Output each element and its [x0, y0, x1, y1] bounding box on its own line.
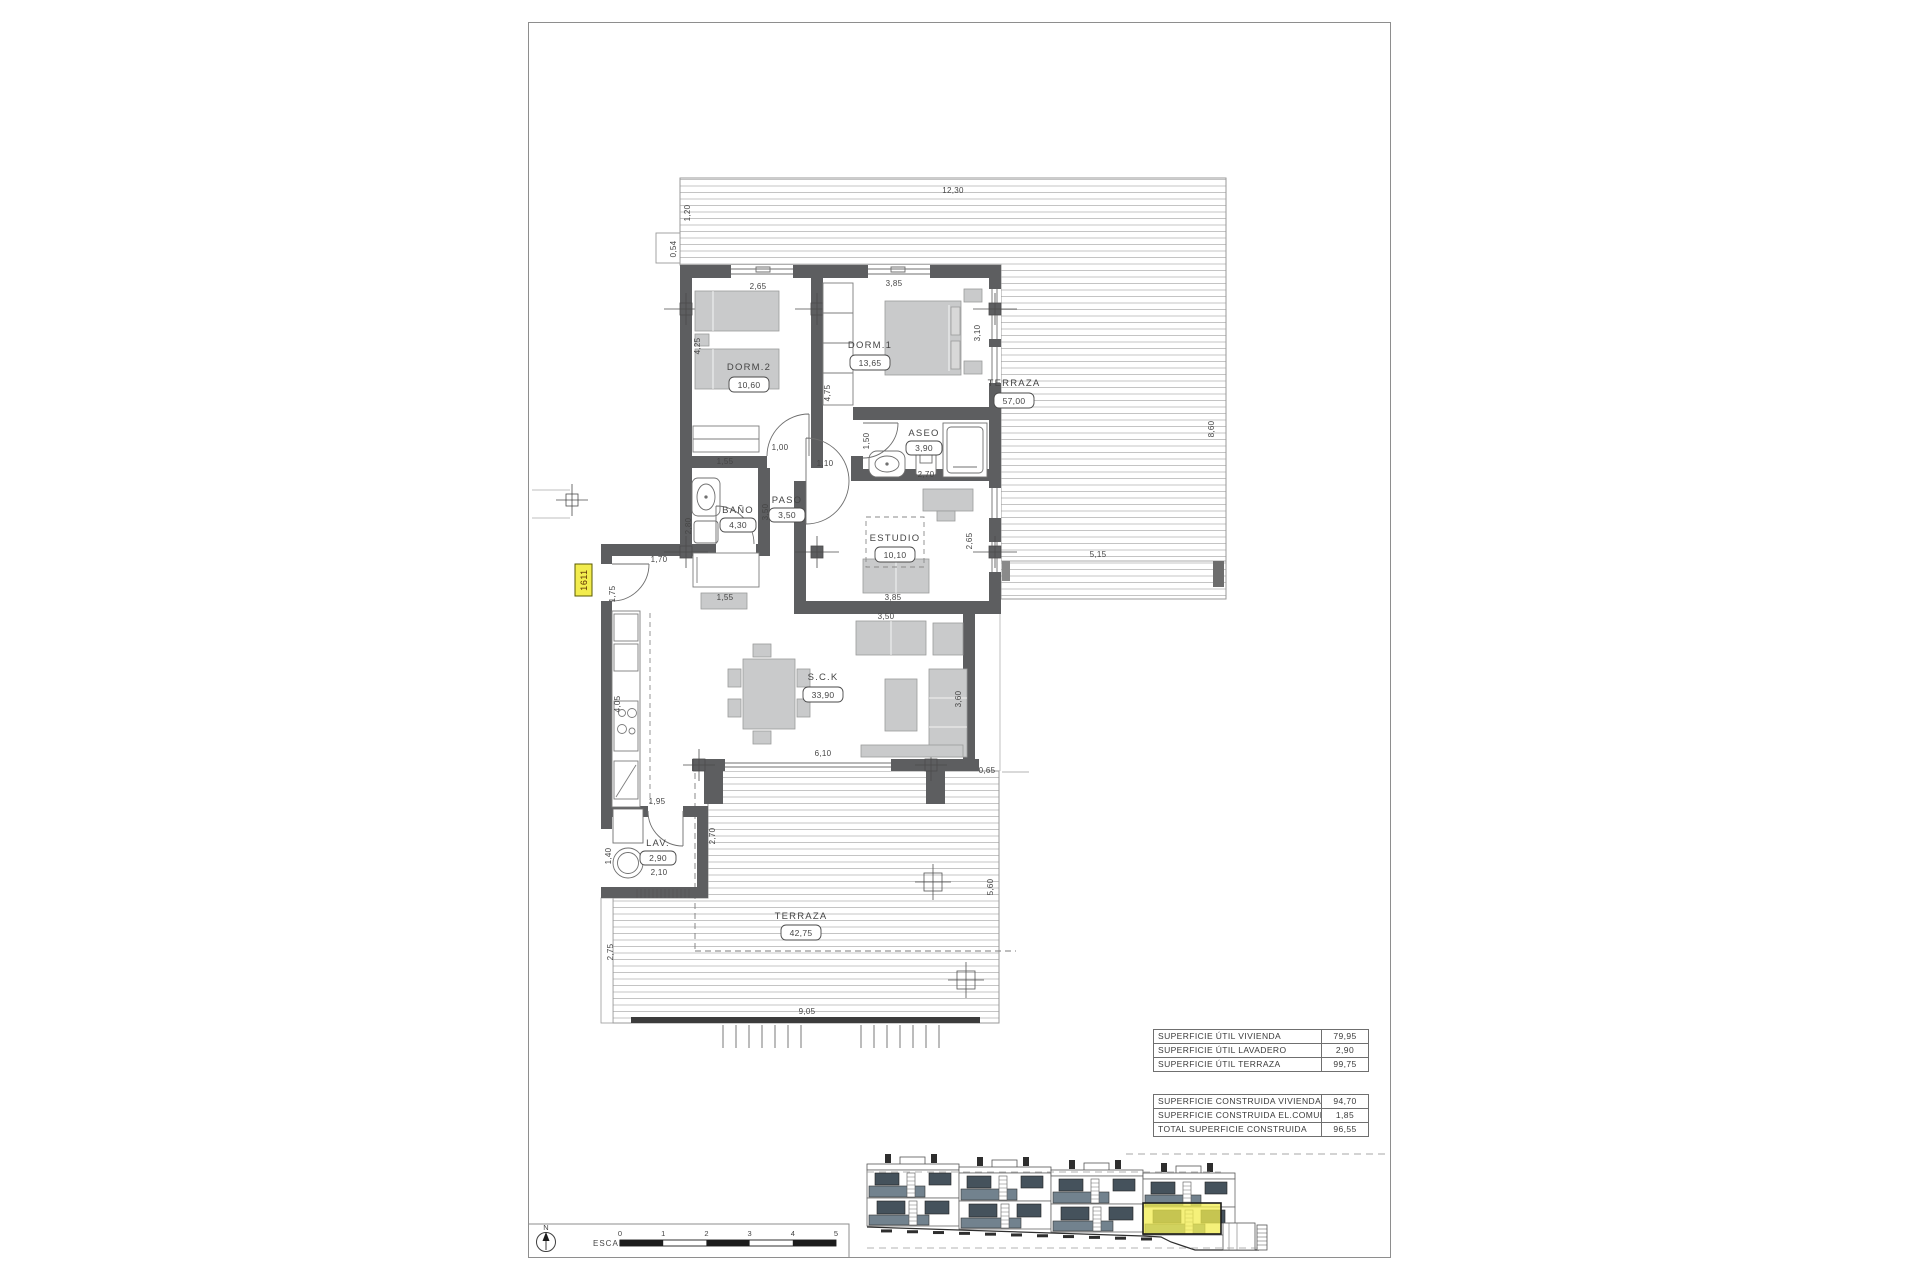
dim-label: 3,60: [954, 690, 963, 707]
room-label-aseo: ASEO 3,90: [906, 428, 942, 455]
svg-text:4,30: 4,30: [729, 520, 747, 530]
table-row-label: TOTAL SUPERFICIE CONSTRUIDA: [1154, 1123, 1321, 1136]
dim-label: 2,65: [965, 532, 974, 549]
svg-text:TERRAZA: TERRAZA: [775, 911, 828, 922]
dim-label: 1,40: [604, 847, 613, 864]
dim-label: 1,10: [817, 459, 834, 468]
dim-label: 5,15: [1090, 550, 1107, 559]
dim-label: 1,50: [862, 432, 871, 449]
north-label: N: [543, 1223, 548, 1232]
dim-label: 1,95: [649, 797, 666, 806]
dim-label: 1,20: [683, 204, 692, 221]
table-row-label: SUPERFICIE ÚTIL LAVADERO: [1154, 1044, 1321, 1057]
dim-label: 2,70: [708, 827, 717, 844]
table-row: SUPERFICIE ÚTIL TERRAZA99,75: [1153, 1058, 1369, 1072]
svg-text:4: 4: [791, 1229, 795, 1238]
dim-label: 9,05: [799, 1007, 816, 1016]
svg-text:3,50: 3,50: [778, 510, 796, 520]
svg-text:ESTUDIO: ESTUDIO: [870, 533, 921, 544]
dim-label: 6,10: [815, 749, 832, 758]
dim-label: 1,70: [651, 555, 668, 564]
table-row: SUPERFICIE ÚTIL LAVADERO2,90: [1153, 1044, 1369, 1058]
table-row-label: SUPERFICIE CONSTRUIDA VIVIENDA: [1154, 1095, 1321, 1108]
dim-label: 4,75: [823, 384, 832, 401]
unit-tag: 1611: [575, 564, 592, 596]
dim-label: 1,55: [717, 593, 734, 602]
svg-text:3: 3: [748, 1229, 752, 1238]
table-row-value: 79,95: [1321, 1030, 1368, 1043]
table-row: SUPERFICIE ÚTIL VIVIENDA79,95: [1153, 1029, 1369, 1044]
dim-label: 3,50: [878, 612, 895, 621]
stair-ticks: [723, 1025, 939, 1048]
room-label-sck: S.C.K 33,90: [803, 672, 843, 702]
dim-label: 5,60: [986, 878, 995, 895]
svg-text:0: 0: [618, 1229, 622, 1238]
dim-label: 2,10: [651, 868, 668, 877]
svg-text:10,60: 10,60: [738, 380, 761, 390]
drawing-sheet: TERRAZA 57,00 DORM.2 10,60 DORM.1 13,65 …: [528, 22, 1391, 1258]
svg-text:33,90: 33,90: [812, 690, 835, 700]
table-row-label: SUPERFICIE CONSTRUIDA EL.COMUNES: [1154, 1109, 1321, 1122]
dim-label: 3,50: [761, 503, 770, 520]
dim-label: 0,65: [979, 766, 996, 775]
svg-text:ASEO: ASEO: [908, 428, 939, 439]
dim-label: 3,85: [885, 593, 902, 602]
table-row: SUPERFICIE CONSTRUIDA EL.COMUNES1,85: [1153, 1109, 1369, 1123]
svg-text:5: 5: [834, 1229, 838, 1238]
room-label-dorm1: DORM.1 13,65: [848, 340, 892, 370]
dim-label: 4,05: [613, 695, 622, 712]
north-arrow-icon: N: [537, 1223, 556, 1252]
svg-text:PASO: PASO: [772, 495, 803, 506]
dim-label: 12,30: [942, 186, 964, 195]
table-row-value: 1,85: [1321, 1109, 1368, 1122]
room-label-lav: LAV. 2,90: [640, 838, 676, 865]
dim-label: 2,65: [750, 282, 767, 291]
dim-label: 2,75: [606, 943, 615, 960]
table-row-value: 2,90: [1321, 1044, 1368, 1057]
dim-label: 2,80: [684, 517, 693, 534]
svg-text:DORM.1: DORM.1: [848, 340, 892, 351]
svg-text:DORM.2: DORM.2: [727, 362, 771, 373]
terrace-edge-beam: [631, 1017, 980, 1023]
surface-table-construida: SUPERFICIE CONSTRUIDA VIVIENDA94,70SUPER…: [1153, 1094, 1369, 1137]
svg-text:3,90: 3,90: [915, 443, 933, 453]
table-row-label: SUPERFICIE ÚTIL VIVIENDA: [1154, 1030, 1321, 1043]
table-row-value: 94,70: [1321, 1095, 1368, 1108]
dim-label: 4,25: [693, 337, 702, 354]
highlighted-unit: [1143, 1203, 1221, 1234]
dim-label: 8,60: [1207, 420, 1216, 437]
dim-label: 1,75: [608, 585, 617, 602]
surface-table-util: SUPERFICIE ÚTIL VIVIENDA79,95SUPERFICIE …: [1153, 1029, 1369, 1072]
table-row: TOTAL SUPERFICIE CONSTRUIDA96,55: [1153, 1123, 1369, 1137]
scale-bar: 0 1 2 3 4 5: [618, 1229, 838, 1246]
svg-text:2: 2: [704, 1229, 708, 1238]
dim-label: 2,70: [918, 470, 935, 479]
svg-text:2,90: 2,90: [649, 853, 667, 863]
room-label-dorm2: DORM.2 10,60: [727, 362, 771, 392]
svg-text:1611: 1611: [579, 569, 589, 590]
table-row-value: 96,55: [1321, 1123, 1368, 1136]
svg-text:10,10: 10,10: [884, 550, 907, 560]
svg-text:42,75: 42,75: [790, 928, 813, 938]
room-label-estudio: ESTUDIO 10,10: [870, 533, 921, 562]
svg-text:BAÑO: BAÑO: [722, 505, 754, 516]
dim-label: 3,85: [886, 279, 903, 288]
dim-label: 0,54: [669, 240, 678, 257]
svg-text:S.C.K: S.C.K: [808, 672, 839, 683]
scale-box: N ESCALA : 0 1 2 3 4 5: [529, 1223, 849, 1257]
table-row-value: 99,75: [1321, 1058, 1368, 1071]
table-row: SUPERFICIE CONSTRUIDA VIVIENDA94,70: [1153, 1094, 1369, 1109]
building-elevation: [867, 1154, 1267, 1250]
dim-label: 1,55: [717, 457, 734, 466]
svg-text:57,00: 57,00: [1003, 396, 1026, 406]
dim-label: 1,00: [772, 443, 789, 452]
dim-label: 3,10: [973, 324, 982, 341]
svg-text:TERRAZA: TERRAZA: [988, 378, 1041, 389]
room-label-paso: PASO 3,50: [769, 495, 805, 522]
svg-text:13,65: 13,65: [859, 358, 882, 368]
table-row-label: SUPERFICIE ÚTIL TERRAZA: [1154, 1058, 1321, 1071]
svg-text:LAV.: LAV.: [646, 838, 670, 849]
room-label-bano: BAÑO 4,30: [720, 505, 756, 532]
svg-text:1: 1: [661, 1229, 665, 1238]
